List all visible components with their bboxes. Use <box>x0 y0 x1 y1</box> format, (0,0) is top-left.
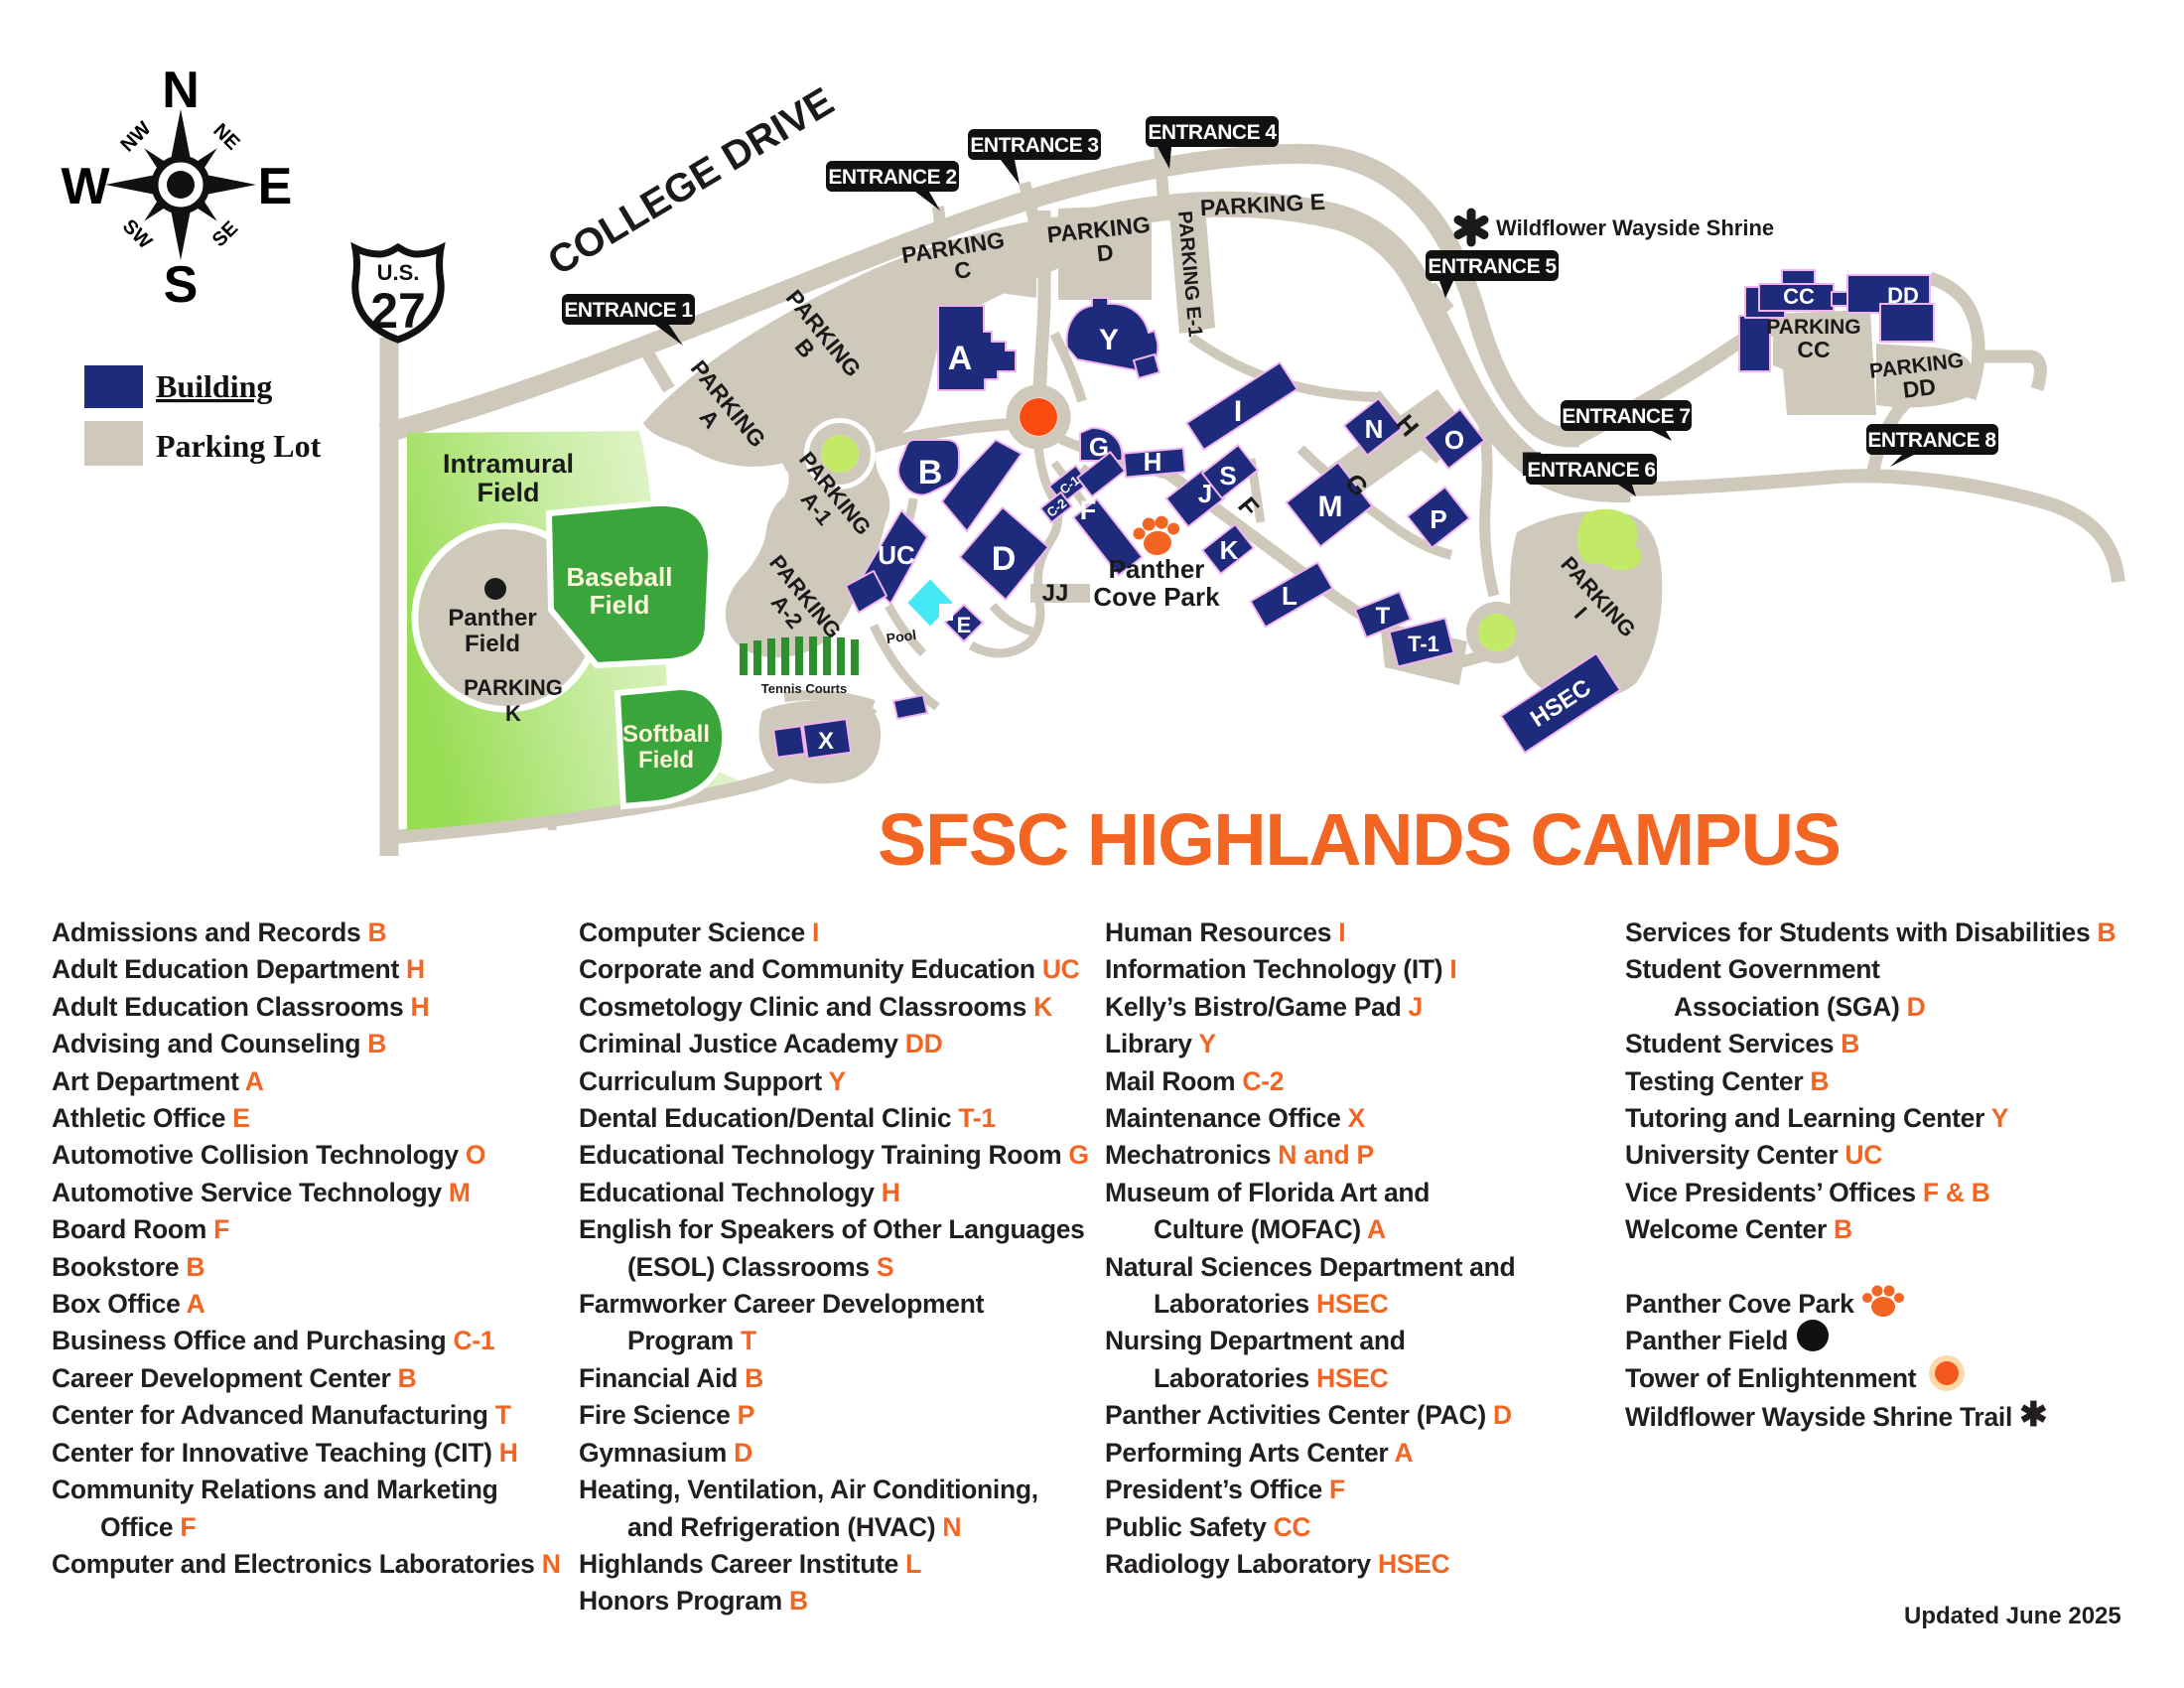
svg-text:Intramural: Intramural <box>443 449 574 479</box>
svg-text:SE: SE <box>208 217 242 251</box>
svg-text:Field: Field <box>590 590 650 620</box>
svg-text:Wildflower Wayside Shrine: Wildflower Wayside Shrine <box>1496 215 1774 240</box>
svg-text:SW: SW <box>118 215 156 253</box>
svg-text:ENTRANCE 6: ENTRANCE 6 <box>1527 459 1655 482</box>
svg-text:L: L <box>1282 581 1297 611</box>
svg-text:UC: UC <box>878 540 915 570</box>
svg-text:COLLEGE DRIVE: COLLEGE DRIVE <box>541 79 842 284</box>
svg-text:NE: NE <box>208 119 243 154</box>
svg-text:DD: DD <box>1901 373 1937 403</box>
svg-text:A: A <box>948 340 973 377</box>
svg-text:U.S.: U.S. <box>377 260 420 285</box>
svg-text:ENTRANCE 4: ENTRANCE 4 <box>1148 121 1277 144</box>
svg-text:T: T <box>1376 603 1391 630</box>
svg-text:S: S <box>164 256 199 314</box>
svg-text:PARKING: PARKING <box>464 675 563 700</box>
svg-text:ENTRANCE 1: ENTRANCE 1 <box>564 299 693 322</box>
svg-text:Field: Field <box>477 478 539 507</box>
svg-text:DD: DD <box>1887 283 1919 308</box>
svg-text:CC: CC <box>1783 284 1815 309</box>
svg-text:K: K <box>505 701 521 726</box>
svg-text:N: N <box>162 62 200 119</box>
svg-text:F: F <box>1080 495 1097 525</box>
svg-text:I: I <box>1234 395 1242 428</box>
svg-text:W: W <box>61 158 110 215</box>
svg-text:Parking Lot: Parking Lot <box>156 428 322 464</box>
svg-text:JJ: JJ <box>1042 580 1069 607</box>
svg-text:ENTRANCE 7: ENTRANCE 7 <box>1562 405 1690 428</box>
svg-text:Y: Y <box>1099 324 1119 356</box>
svg-text:K: K <box>1220 535 1239 565</box>
svg-text:Building: Building <box>156 368 272 404</box>
svg-text:X: X <box>818 728 834 755</box>
svg-text:T-1: T-1 <box>1408 632 1439 656</box>
svg-text:Tennis Courts: Tennis Courts <box>761 681 847 696</box>
svg-text:J: J <box>1198 479 1212 508</box>
svg-text:M: M <box>1318 491 1343 523</box>
svg-text:27: 27 <box>370 283 426 339</box>
svg-text:H: H <box>1144 447 1162 477</box>
svg-text:PARKING: PARKING <box>1766 316 1860 339</box>
svg-text:D: D <box>992 540 1017 578</box>
svg-text:Field: Field <box>465 631 520 657</box>
svg-text:G: G <box>1089 432 1109 462</box>
svg-text:Panther: Panther <box>1109 554 1205 584</box>
svg-text:ENTRANCE 2: ENTRANCE 2 <box>828 166 956 189</box>
svg-text:N: N <box>1365 414 1384 444</box>
svg-text:Panther: Panther <box>448 605 536 632</box>
svg-text:E: E <box>258 158 293 215</box>
svg-text:ENTRANCE 8: ENTRANCE 8 <box>1867 429 1996 452</box>
svg-text:Cove Park: Cove Park <box>1093 582 1220 612</box>
svg-text:B: B <box>918 454 943 492</box>
svg-text:S: S <box>1219 461 1236 491</box>
svg-text:ENTRANCE 3: ENTRANCE 3 <box>970 134 1098 157</box>
svg-text:ENTRANCE 5: ENTRANCE 5 <box>1428 255 1557 278</box>
svg-text:E: E <box>957 613 972 637</box>
svg-text:D: D <box>1096 239 1115 267</box>
svg-text:Field: Field <box>638 747 694 774</box>
svg-text:P: P <box>1430 504 1446 534</box>
svg-text:Baseball: Baseball <box>567 562 673 592</box>
svg-text:Softball: Softball <box>622 721 710 748</box>
svg-text:CC: CC <box>1797 337 1830 362</box>
svg-text:NW: NW <box>116 117 155 156</box>
svg-text:O: O <box>1444 425 1464 455</box>
